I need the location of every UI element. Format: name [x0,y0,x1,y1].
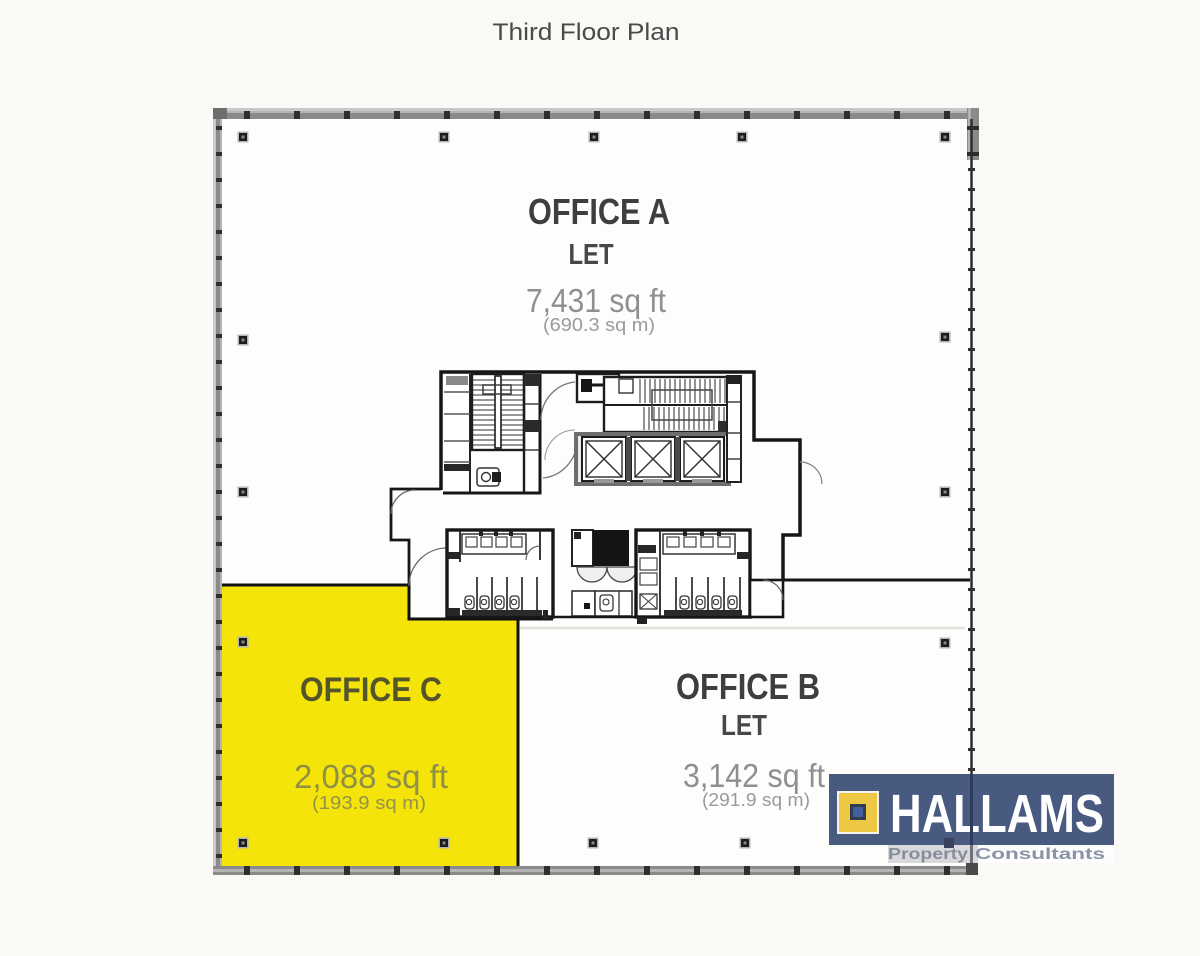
svg-text:(690.3 sq m): (690.3 sq m) [543,315,655,335]
svg-text:Third Floor Plan: Third Floor Plan [493,19,680,46]
svg-text:3,142 sq ft: 3,142 sq ft [683,757,825,794]
svg-text:Consultants: Consultants [975,846,1105,863]
svg-text:LET: LET [721,710,767,742]
svg-text:2,088 sq ft: 2,088 sq ft [294,758,448,795]
svg-text:(193.9 sq m): (193.9 sq m) [312,793,426,813]
svg-text:HALLAMS: HALLAMS [890,784,1104,844]
svg-text:OFFICE A: OFFICE A [528,191,670,232]
svg-text:7,431 sq ft: 7,431 sq ft [526,282,666,319]
svg-text:(291.9 sq m): (291.9 sq m) [702,790,810,810]
svg-text:OFFICE B: OFFICE B [676,666,820,707]
svg-text:OFFICE C: OFFICE C [300,671,442,709]
svg-text:LET: LET [569,239,614,271]
